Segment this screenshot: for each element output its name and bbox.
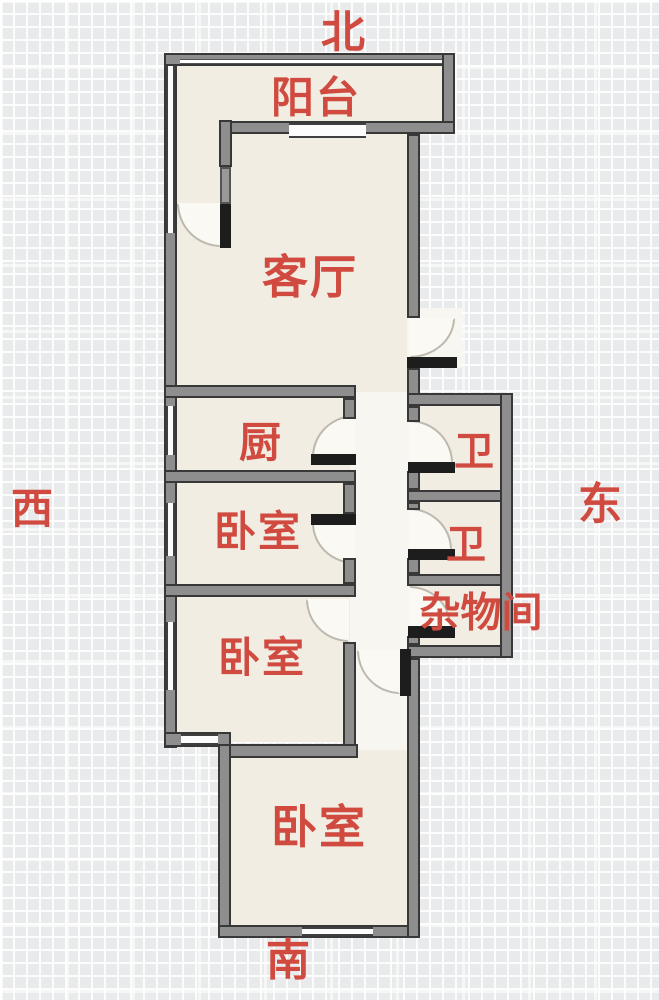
balcony-living-window bbox=[289, 123, 366, 138]
compass-north-label: 北 bbox=[321, 11, 367, 55]
bathroom-1-label: 卫 bbox=[454, 432, 496, 472]
kitchen-north-wall bbox=[164, 385, 356, 398]
bathroom1-north-wall bbox=[407, 393, 513, 406]
floor-plan: 北 阳台 客厅 厨 卧室 卧室 卫 卫 杂物间 卧室 西 东 南 bbox=[0, 0, 659, 1000]
living-room-left-door-panel bbox=[220, 204, 231, 248]
compass-south-label: 南 bbox=[266, 939, 312, 983]
bedroom3-north-wall bbox=[218, 744, 358, 758]
balcony-label: 阳台 bbox=[271, 78, 361, 121]
north-window bbox=[180, 59, 442, 64]
storage-south-wall bbox=[407, 645, 513, 658]
bathroom-1-door-panel bbox=[408, 462, 455, 473]
bathroom1-west-wall-upper bbox=[407, 406, 420, 422]
bathroom1-west-wall-lower bbox=[407, 471, 420, 490]
living-room-left-door-upper-panel bbox=[220, 167, 231, 204]
bedroom3-east-wall bbox=[407, 658, 420, 938]
living-room-right-wall bbox=[407, 134, 420, 318]
bedroom-1-label: 卧室 bbox=[214, 511, 302, 553]
bathroom2-west-wall-upper bbox=[407, 502, 420, 510]
bedroom3-west-wall bbox=[218, 744, 231, 938]
bedroom2-south-window bbox=[181, 734, 218, 745]
kitchen-door-sill bbox=[311, 454, 356, 465]
corridor-floor bbox=[350, 392, 413, 655]
bedroom-1-door-sill bbox=[311, 514, 356, 525]
kitchen-west-window bbox=[166, 406, 175, 455]
kitchen-bedroom1-divider-wall bbox=[164, 470, 356, 483]
compass-east-label: 东 bbox=[578, 483, 624, 527]
bedroom1-east-wall-lower bbox=[343, 558, 356, 584]
bedroom2-east-wall-lower bbox=[343, 642, 356, 748]
bedroom-3-door-panel bbox=[400, 649, 411, 696]
bedroom1-bedroom2-divider-wall bbox=[164, 584, 356, 597]
balcony-living-west-window bbox=[166, 66, 175, 233]
bedroom2-west-window bbox=[166, 622, 175, 690]
bathroom2-storage-divider-wall bbox=[407, 574, 513, 586]
bathroom-2-label: 卫 bbox=[446, 525, 488, 565]
living-room-left-wall bbox=[219, 120, 232, 167]
bedroom-2-label: 卧室 bbox=[218, 637, 306, 679]
bedroom1-east-wall-upper bbox=[343, 483, 356, 514]
entry-door-sill bbox=[407, 357, 457, 368]
kitchen-label: 厨 bbox=[239, 422, 283, 464]
living-room-label: 客厅 bbox=[262, 254, 358, 300]
bathroom2-west-wall-lower bbox=[407, 558, 420, 574]
bedroom3-south-window bbox=[302, 927, 373, 936]
bedroom1-west-window bbox=[166, 503, 175, 556]
storage-room-label: 杂物间 bbox=[420, 593, 543, 634]
compass-west-label: 西 bbox=[11, 488, 55, 530]
bedroom-3-label: 卧室 bbox=[271, 804, 367, 850]
kitchen-east-wall bbox=[343, 398, 356, 419]
bathroom1-bathroom2-divider-wall bbox=[407, 490, 513, 502]
